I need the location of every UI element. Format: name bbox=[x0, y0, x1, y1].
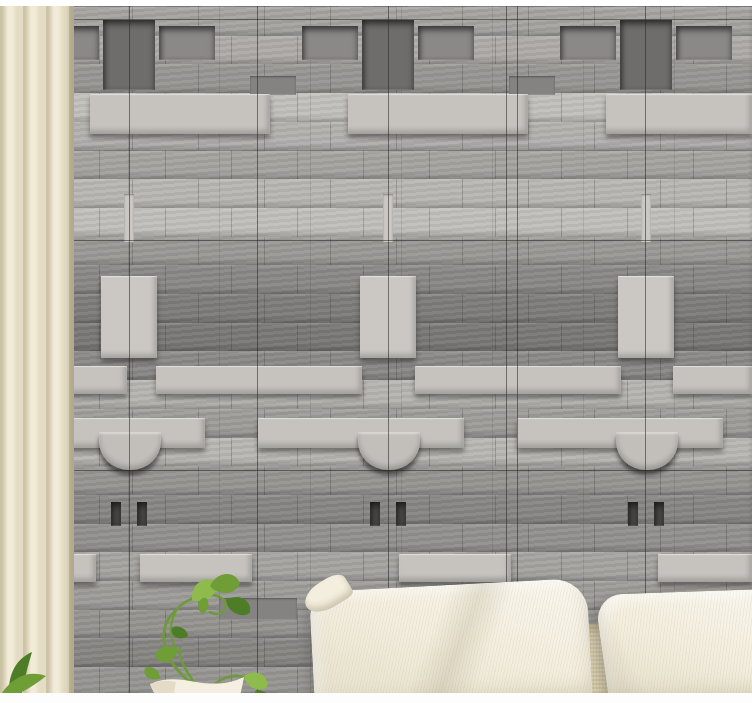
pillow-right bbox=[594, 589, 752, 703]
stone-motif-notch_dark bbox=[654, 502, 664, 526]
stone-motif-notch_dark bbox=[628, 502, 638, 526]
stone-motif-light_brick bbox=[606, 94, 752, 134]
leaf bbox=[223, 592, 255, 620]
stone-motif-light_brick bbox=[415, 366, 621, 394]
panel-seam-horizontal bbox=[0, 19, 752, 20]
leaf bbox=[241, 668, 271, 693]
stone-motif-slit_light bbox=[641, 194, 651, 242]
stone-motif-light_brick bbox=[658, 554, 752, 582]
panel-seam-horizontal bbox=[0, 240, 752, 241]
stone-motif-light_brick bbox=[156, 366, 362, 394]
stone-motif-notch_dark bbox=[111, 502, 121, 526]
potted-plant bbox=[120, 540, 320, 703]
pillow-left bbox=[309, 578, 593, 703]
brick-row bbox=[0, 523, 752, 553]
stone-motif-light_block bbox=[618, 276, 674, 358]
stone-motif-recess_panel bbox=[418, 26, 474, 60]
brick-row bbox=[0, 207, 752, 237]
panel-seam-horizontal bbox=[0, 470, 752, 471]
stone-motif-light_brick bbox=[673, 366, 752, 394]
stone-motif-light_brick bbox=[399, 554, 511, 582]
stone-motif-recess_panel bbox=[676, 26, 732, 60]
brick-row bbox=[0, 150, 752, 180]
stone-motif-recess_panel bbox=[560, 26, 616, 60]
stone-motif-recess_panel bbox=[302, 26, 358, 60]
stone-motif-notch_dark bbox=[396, 502, 406, 526]
brick-row bbox=[0, 178, 752, 208]
top-white-margin bbox=[0, 0, 752, 6]
product-photo bbox=[0, 0, 752, 703]
bottom-white-margin bbox=[0, 693, 752, 703]
brick-row bbox=[0, 551, 752, 581]
stone-motif-light_brick bbox=[90, 94, 270, 134]
curtain bbox=[0, 0, 74, 703]
stone-motif-mid_dark_brick bbox=[509, 76, 555, 95]
stone-motif-dark_block bbox=[620, 20, 672, 90]
stone-motif-notch_dark bbox=[370, 502, 380, 526]
stone-motif-notch_dark bbox=[137, 502, 147, 526]
leaf bbox=[141, 664, 162, 683]
stone-motif-recess_panel bbox=[159, 26, 215, 60]
stone-motif-light_brick bbox=[348, 94, 528, 134]
